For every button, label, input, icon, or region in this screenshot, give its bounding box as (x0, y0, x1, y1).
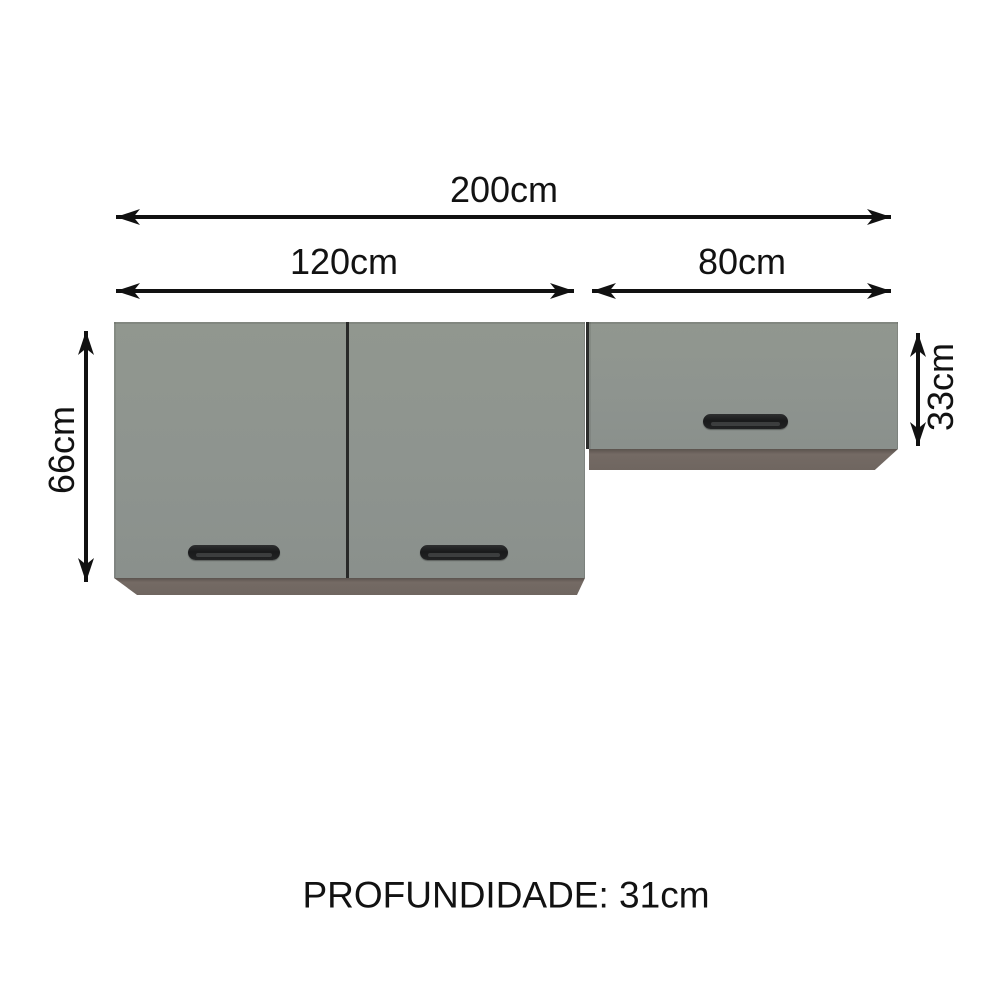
total-width-label: 200cm (450, 172, 558, 208)
handle-recess (196, 553, 271, 557)
right-cabinet-handle (703, 414, 788, 429)
right-width-label: 80cm (698, 244, 786, 280)
left-cabinet-door2-handle (420, 545, 508, 560)
dimension-diagram: 200cm 120cm 80cm 66cm 33cm PROFUNDIDADE:… (0, 0, 1000, 1000)
handle-recess (711, 422, 781, 426)
left-height-label: 66cm (44, 406, 80, 494)
right-cabinet-bottom-edge (589, 449, 898, 470)
right-cabinet-front (586, 322, 898, 449)
left-cabinet-door1-handle (188, 545, 280, 560)
right-height-label: 33cm (923, 343, 959, 431)
left-cabinet-front (114, 322, 585, 578)
depth-label: PROFUNDIDADE: 31cm (302, 877, 709, 914)
left-cabinet-bottom-edge (114, 578, 585, 595)
handle-recess (428, 553, 500, 557)
left-width-label: 120cm (290, 244, 398, 280)
left-cabinet-door-separator (346, 322, 349, 578)
